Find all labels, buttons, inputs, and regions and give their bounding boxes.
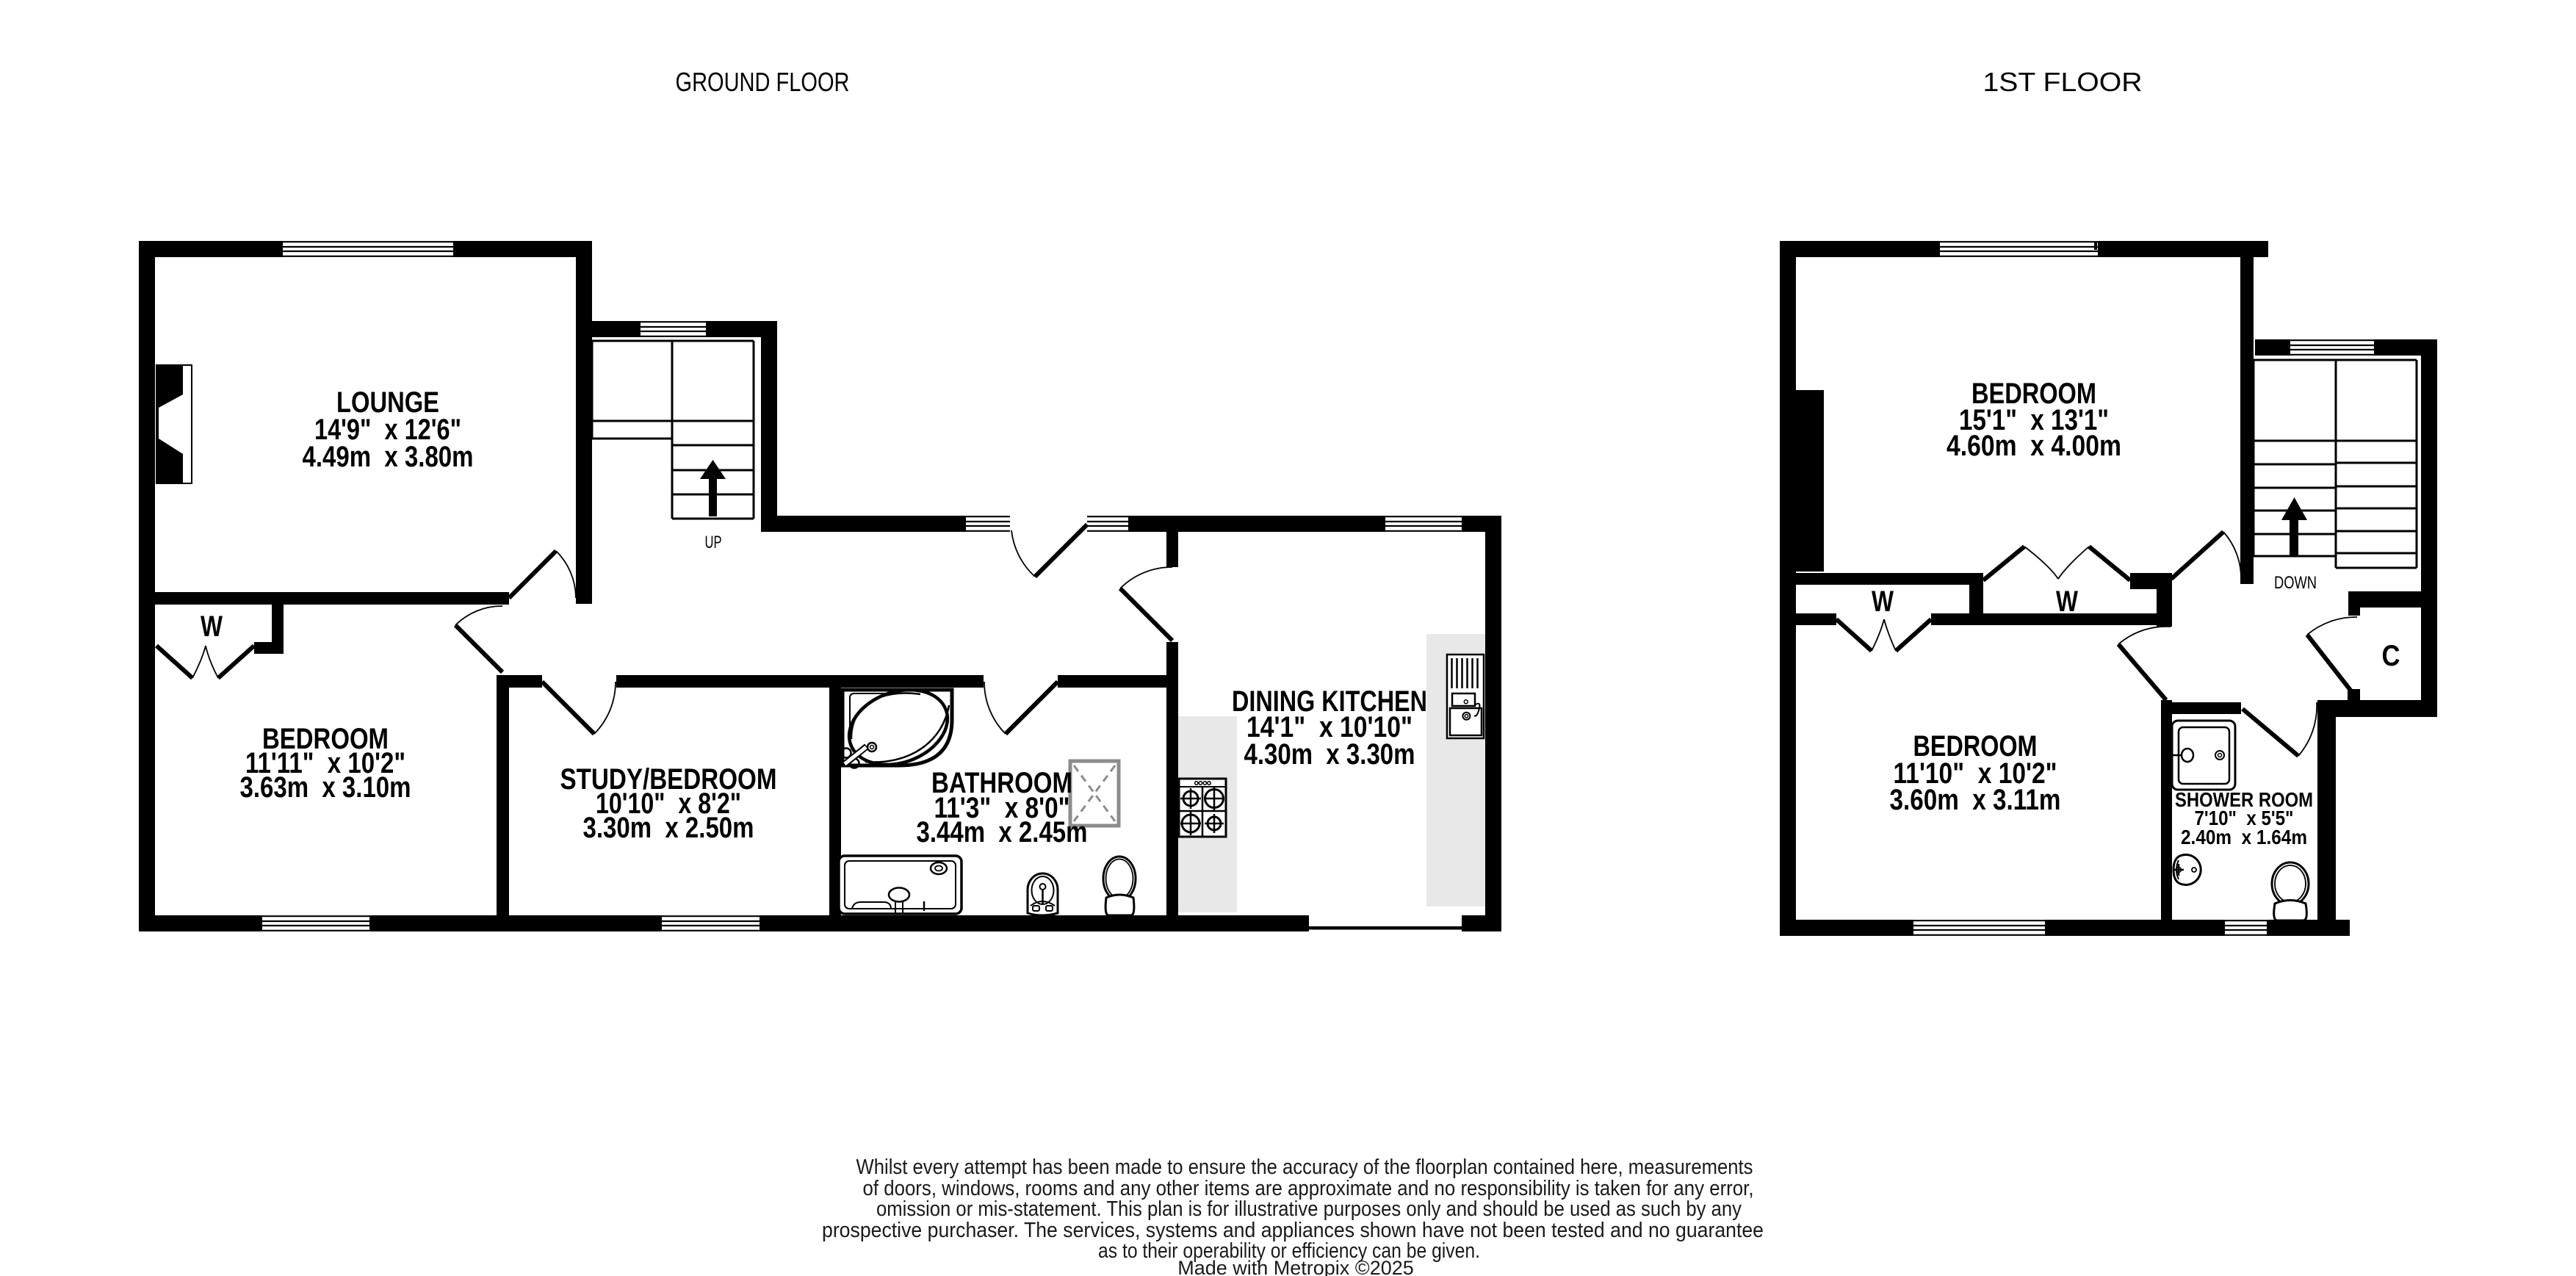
svg-text:Whilst every attempt has been: Whilst every attempt has been made to en… (856, 1156, 1753, 1179)
svg-text:W: W (2056, 585, 2078, 618)
svg-text:2.40m x 1.64m: 2.40m x 1.64m (2181, 826, 2307, 848)
svg-text:3.44m x 2.45m: 3.44m x 2.45m (917, 816, 1088, 848)
svg-text:DOWN: DOWN (2274, 573, 2317, 593)
svg-text:3.63m x 3.10m: 3.63m x 3.10m (240, 771, 411, 804)
svg-text:4.60m x 4.00m: 4.60m x 4.00m (1947, 430, 2121, 462)
svg-text:3.30m x 2.50m: 3.30m x 2.50m (583, 812, 754, 844)
svg-text:UP: UP (705, 533, 722, 552)
svg-text:1ST FLOOR: 1ST FLOOR (1983, 67, 2143, 97)
svg-text:W: W (201, 610, 223, 643)
svg-text:W: W (1872, 585, 1894, 618)
svg-text:4.30m x 3.30m: 4.30m x 3.30m (1244, 738, 1415, 771)
svg-text:omission or mis-statement. Thi: omission or mis-statement. This plan is … (876, 1197, 1742, 1221)
svg-text:Made with Metropix ©2025: Made with Metropix ©2025 (1177, 1257, 1414, 1276)
svg-text:3.60m x 3.11m: 3.60m x 3.11m (1890, 784, 2061, 816)
svg-text:GROUND FLOOR: GROUND FLOOR (676, 67, 850, 97)
svg-text:4.49m x 3.80m: 4.49m x 3.80m (303, 441, 474, 473)
svg-text:C: C (2382, 640, 2400, 672)
